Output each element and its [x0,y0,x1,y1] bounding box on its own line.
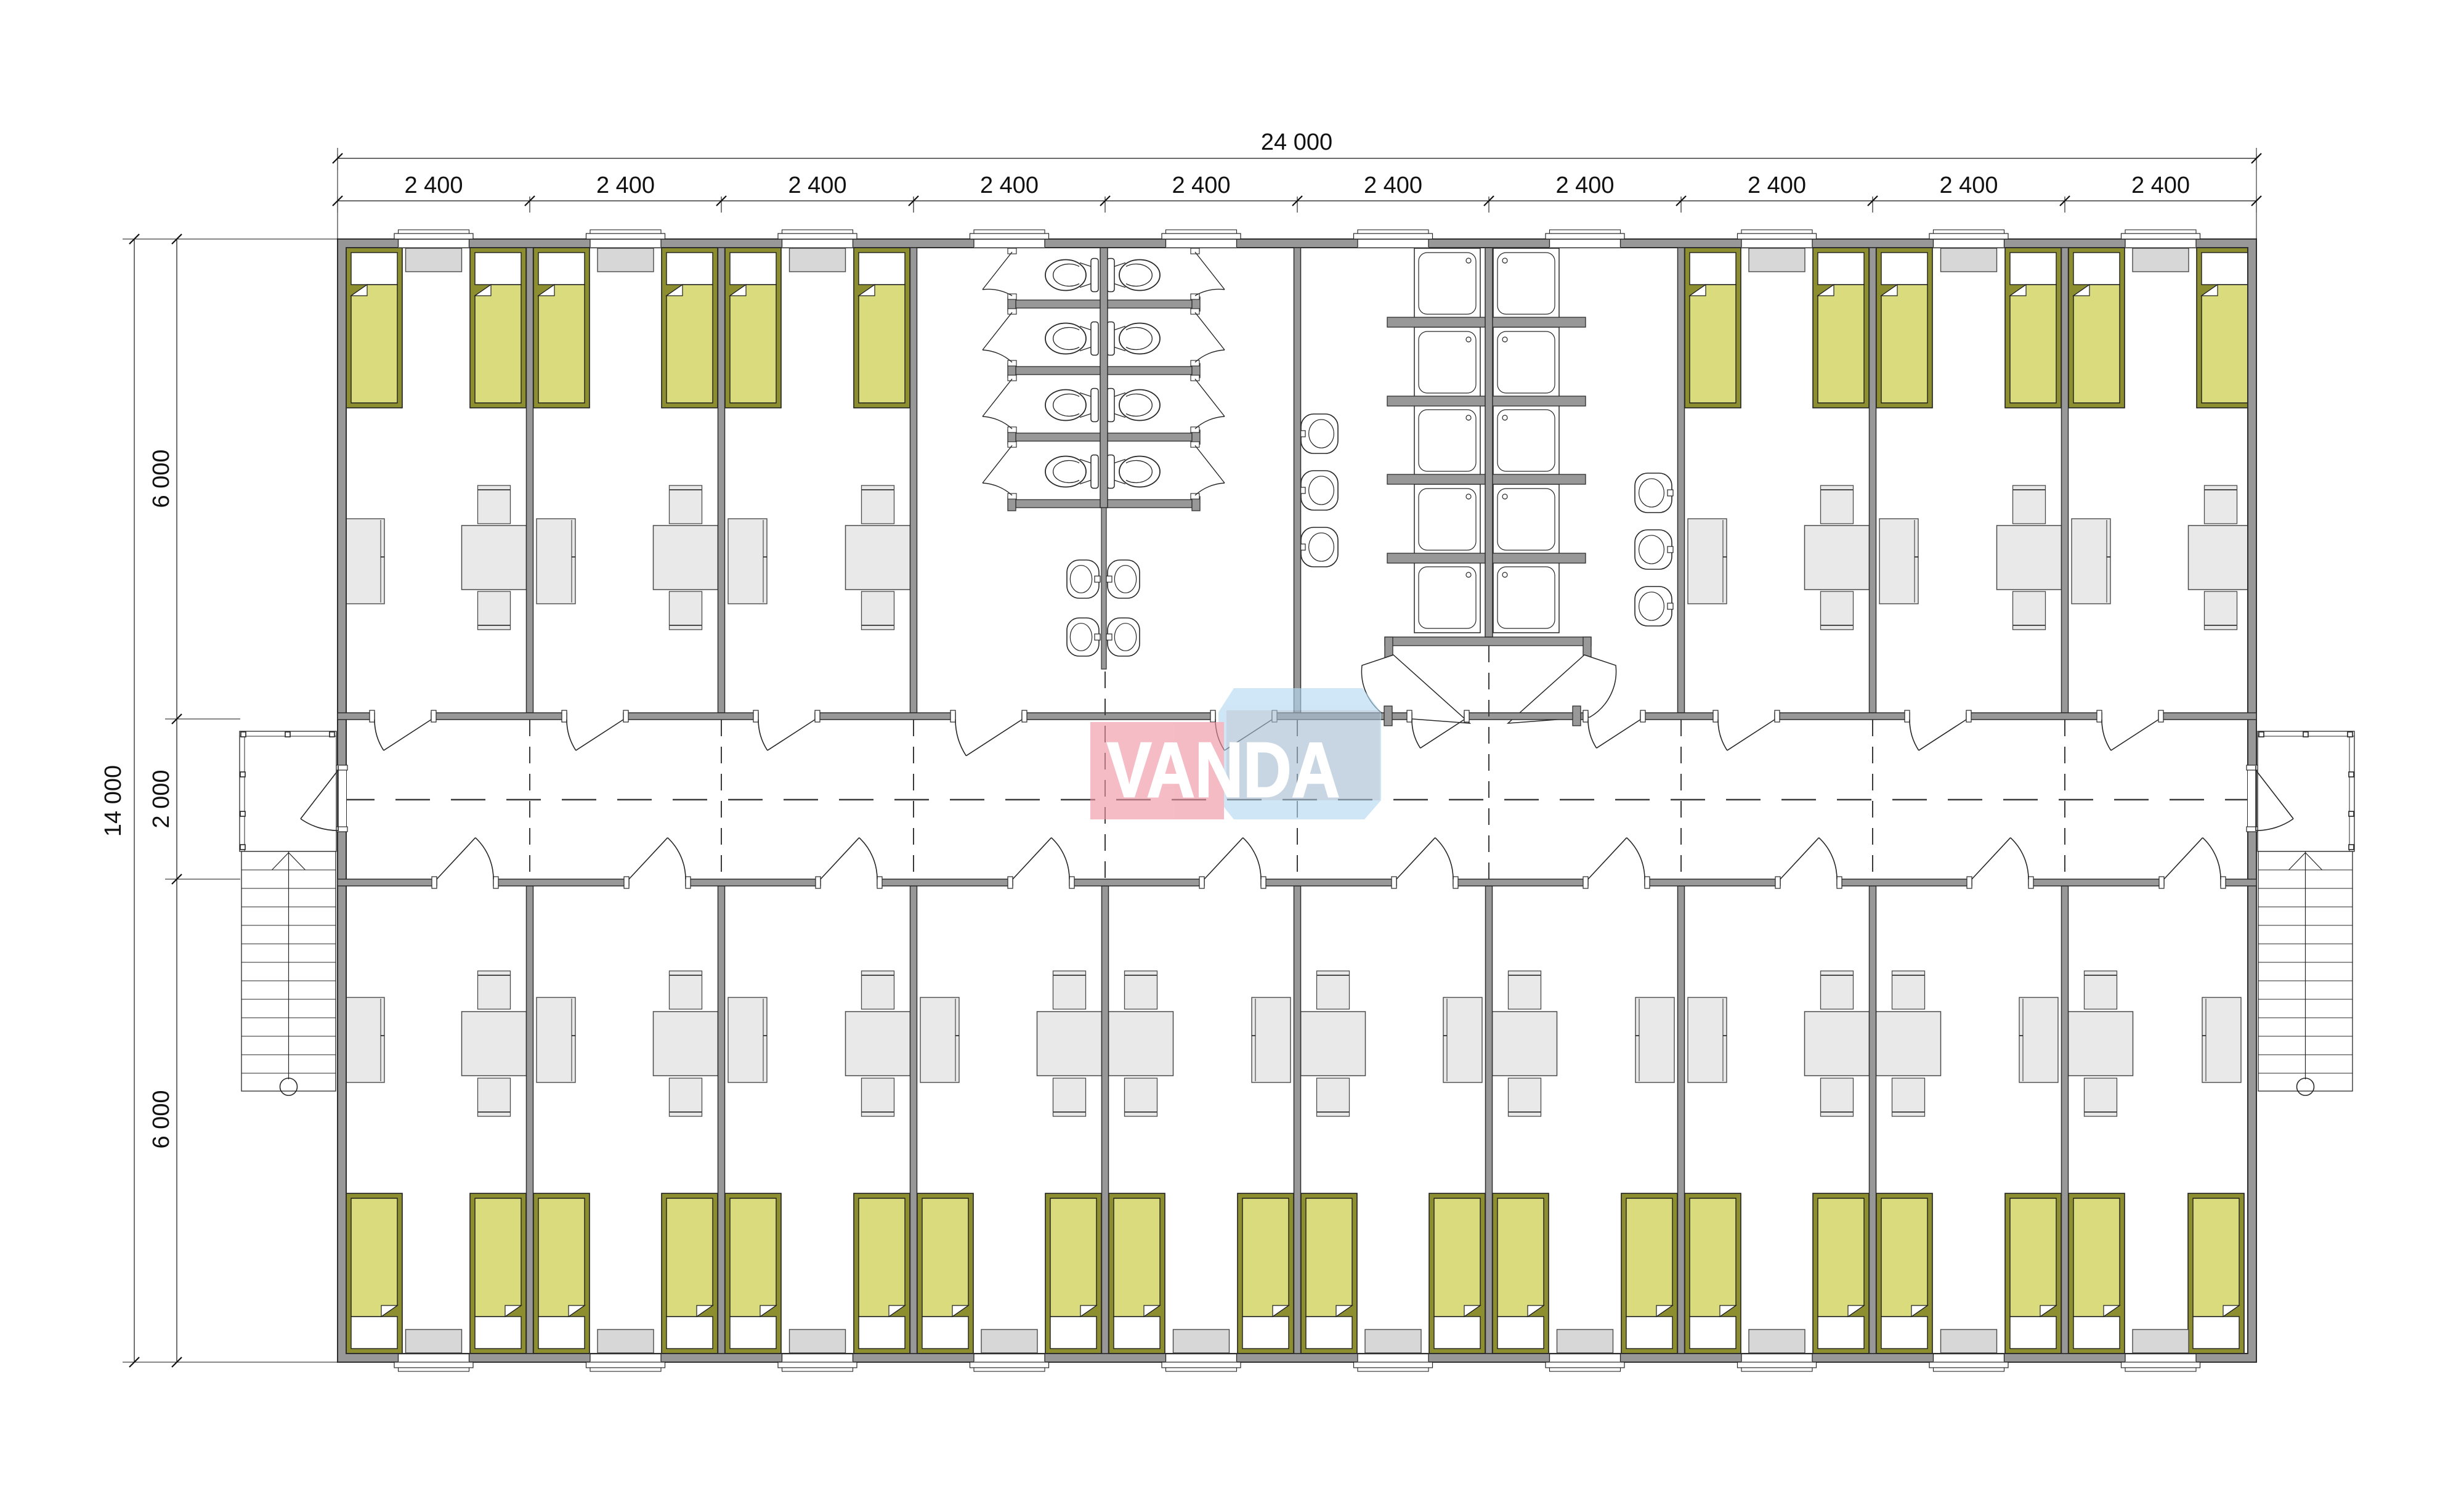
svg-text:24 000: 24 000 [1261,129,1332,155]
svg-text:VANDA: VANDA [1107,726,1340,813]
svg-text:6 000: 6 000 [148,449,174,508]
svg-text:2 400: 2 400 [980,173,1039,198]
svg-text:2 400: 2 400 [1555,173,1614,198]
svg-text:2 000: 2 000 [148,769,174,828]
svg-text:2 400: 2 400 [1939,173,1998,198]
svg-text:2 400: 2 400 [2131,173,2190,198]
svg-text:2 400: 2 400 [788,173,846,198]
svg-text:2 400: 2 400 [1364,173,1422,198]
svg-text:2 400: 2 400 [1748,173,1806,198]
svg-text:2 400: 2 400 [404,173,463,198]
svg-text:2 400: 2 400 [1172,173,1230,198]
svg-text:6 000: 6 000 [148,1090,174,1148]
svg-text:14 000: 14 000 [100,765,126,837]
svg-text:2 400: 2 400 [596,173,655,198]
